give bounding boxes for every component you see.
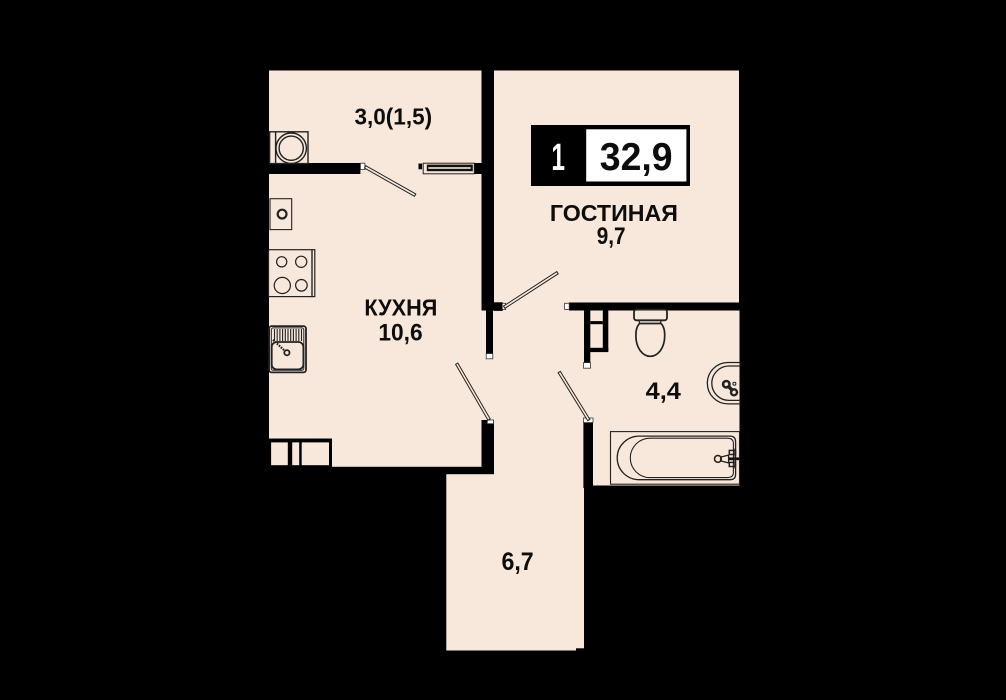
svg-text:10,6: 10,6 [378,320,422,347]
svg-text:1: 1 [551,137,565,179]
svg-text:32,9: 32,9 [600,136,673,179]
svg-text:4,4: 4,4 [646,378,682,405]
svg-text:КУХНЯ: КУХНЯ [364,295,437,321]
svg-text:9,7: 9,7 [597,223,626,250]
svg-text:3,0(1,5): 3,0(1,5) [355,103,433,129]
svg-text:6,7: 6,7 [502,548,534,576]
